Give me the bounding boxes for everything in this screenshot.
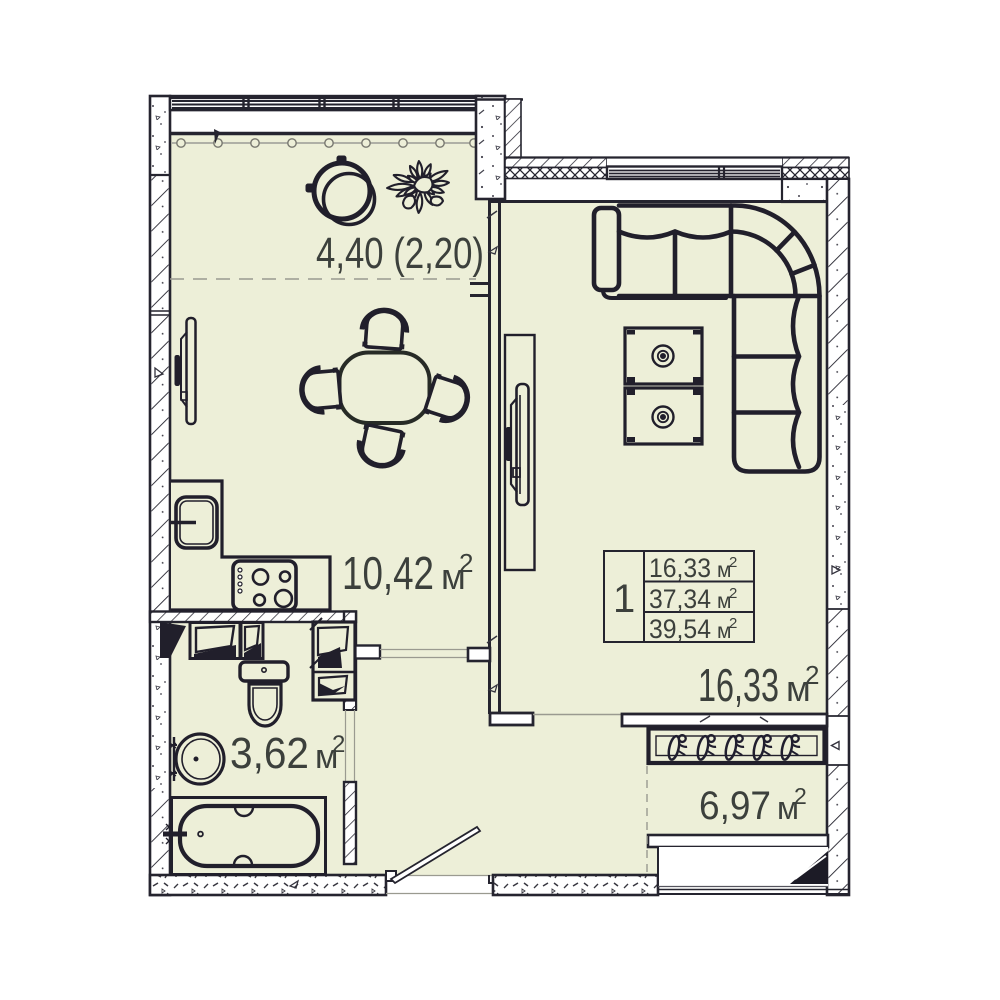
svg-text:1: 1: [613, 577, 635, 621]
svg-text:39,54: 39,54: [649, 614, 711, 644]
svg-text:16,33: 16,33: [698, 659, 779, 711]
svg-text:2: 2: [805, 660, 819, 690]
svg-text:2: 2: [729, 585, 737, 602]
svg-text:2: 2: [332, 731, 345, 758]
svg-text:4,40 (2,20): 4,40 (2,20): [316, 229, 484, 278]
svg-text:10,42: 10,42: [342, 547, 434, 599]
svg-text:6,97: 6,97: [699, 784, 771, 828]
svg-text:2: 2: [729, 554, 737, 571]
svg-text:2: 2: [459, 548, 473, 578]
svg-text:16,33: 16,33: [649, 553, 711, 583]
svg-text:37,34: 37,34: [649, 584, 711, 614]
svg-text:2: 2: [729, 615, 737, 632]
svg-text:3,62: 3,62: [230, 729, 309, 778]
svg-text:2: 2: [794, 783, 807, 809]
